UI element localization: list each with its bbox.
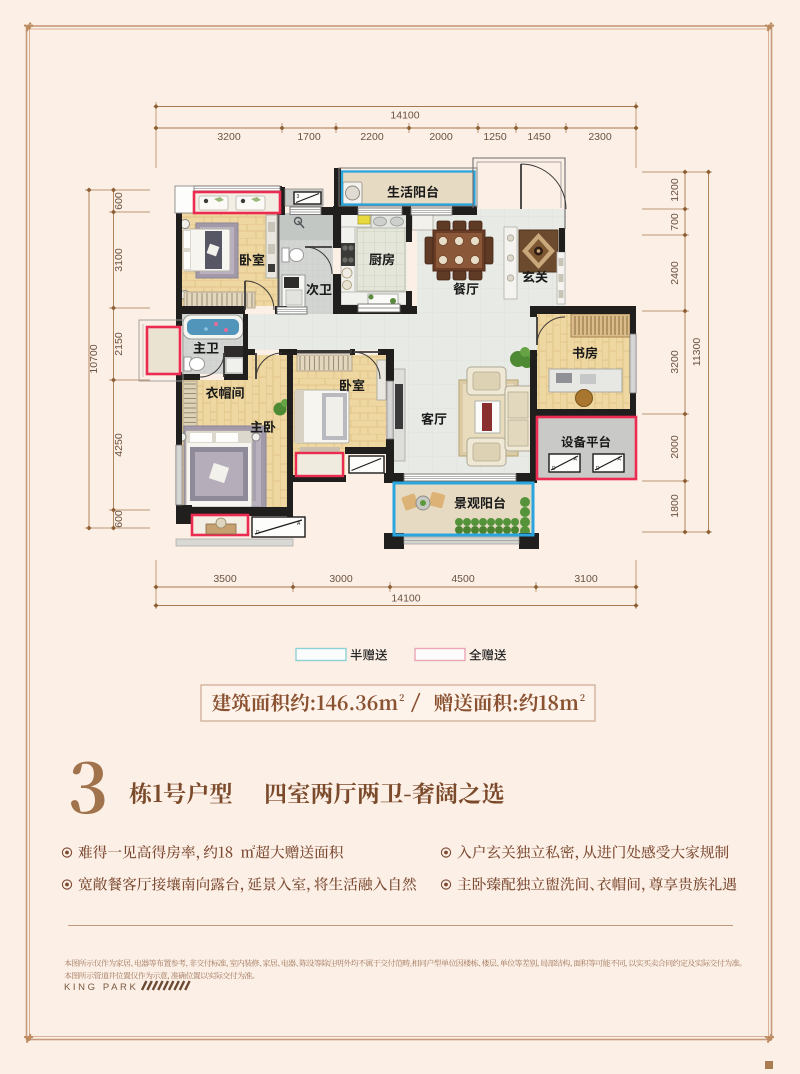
svg-text:14100: 14100 xyxy=(391,593,420,605)
svg-text:3100: 3100 xyxy=(574,573,598,585)
svg-text:14100: 14100 xyxy=(390,110,419,122)
svg-text:600: 600 xyxy=(113,192,125,210)
svg-text:1200: 1200 xyxy=(669,178,681,202)
svg-text:600: 600 xyxy=(113,510,125,528)
svg-text:2000: 2000 xyxy=(669,435,681,459)
svg-text:D: D xyxy=(552,466,556,472)
svg-text:700: 700 xyxy=(669,213,681,231)
svg-text:3500: 3500 xyxy=(213,573,237,585)
svg-text:3: 3 xyxy=(297,194,300,200)
svg-text:1450: 1450 xyxy=(527,131,551,143)
svg-text:1800: 1800 xyxy=(669,494,681,518)
svg-text:1250: 1250 xyxy=(483,131,507,143)
svg-text:4250: 4250 xyxy=(113,433,125,457)
svg-text:2300: 2300 xyxy=(588,131,612,143)
svg-text:3100: 3100 xyxy=(113,248,125,272)
svg-text:D: D xyxy=(256,530,260,536)
svg-text:4500: 4500 xyxy=(451,573,475,585)
svg-text:11300: 11300 xyxy=(691,338,703,367)
svg-text:2150: 2150 xyxy=(113,332,125,356)
svg-text:2000: 2000 xyxy=(429,131,453,143)
svg-text:3000: 3000 xyxy=(329,573,353,585)
svg-text:3200: 3200 xyxy=(217,131,241,143)
svg-text:10700: 10700 xyxy=(88,344,100,373)
svg-text:1700: 1700 xyxy=(297,131,321,143)
svg-text:2200: 2200 xyxy=(360,131,384,143)
svg-text:3200: 3200 xyxy=(669,350,681,374)
svg-text:KING PARK: KING PARK xyxy=(64,982,138,993)
svg-text:2400: 2400 xyxy=(669,261,681,285)
svg-text:D: D xyxy=(596,466,600,472)
